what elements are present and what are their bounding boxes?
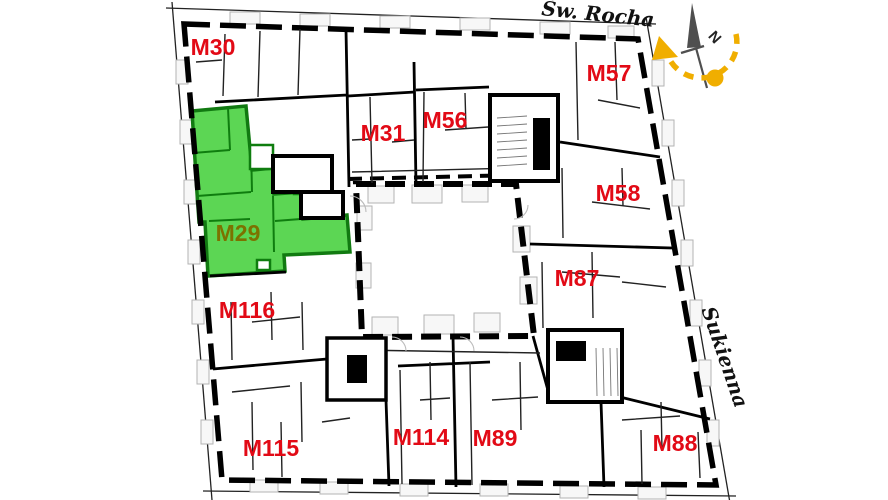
stairwell-core-north bbox=[490, 95, 558, 181]
courtyard-walls bbox=[356, 184, 534, 337]
unit-label-m58[interactable]: M58 bbox=[596, 180, 641, 206]
unit-label-m31[interactable]: M31 bbox=[361, 120, 406, 146]
compass: N bbox=[652, 3, 737, 88]
stairwell-core-southeast bbox=[548, 330, 622, 402]
unit-label-m116[interactable]: M116 bbox=[219, 297, 275, 323]
rotate-arrowhead-icon[interactable] bbox=[652, 36, 678, 60]
unit-label-m57[interactable]: M57 bbox=[587, 60, 632, 86]
stairwell-core-southwest bbox=[327, 338, 386, 400]
north-arrow-icon bbox=[687, 3, 701, 48]
north-arrow-tail bbox=[696, 48, 707, 88]
floor-plan-page: M30 M31 M56 M57 M58 M87 M88 M89 M114 M11… bbox=[0, 0, 888, 500]
unit-label-m88[interactable]: M88 bbox=[653, 430, 698, 456]
unit-label-m29[interactable]: M29 bbox=[216, 220, 261, 246]
rotate-handle-dot[interactable] bbox=[707, 70, 724, 87]
floor-plan-canvas: M30 M31 M56 M57 M58 M87 M88 M89 M114 M11… bbox=[0, 0, 888, 500]
north-label: N bbox=[705, 28, 725, 47]
unit-label-m89[interactable]: M89 bbox=[473, 425, 518, 451]
unit-label-m30[interactable]: M30 bbox=[191, 34, 236, 60]
unit-label-m56[interactable]: M56 bbox=[423, 107, 468, 133]
unit-label-m87[interactable]: M87 bbox=[555, 265, 600, 291]
unit-label-m115[interactable]: M115 bbox=[243, 435, 299, 461]
unit-label-m114[interactable]: M114 bbox=[393, 424, 449, 450]
